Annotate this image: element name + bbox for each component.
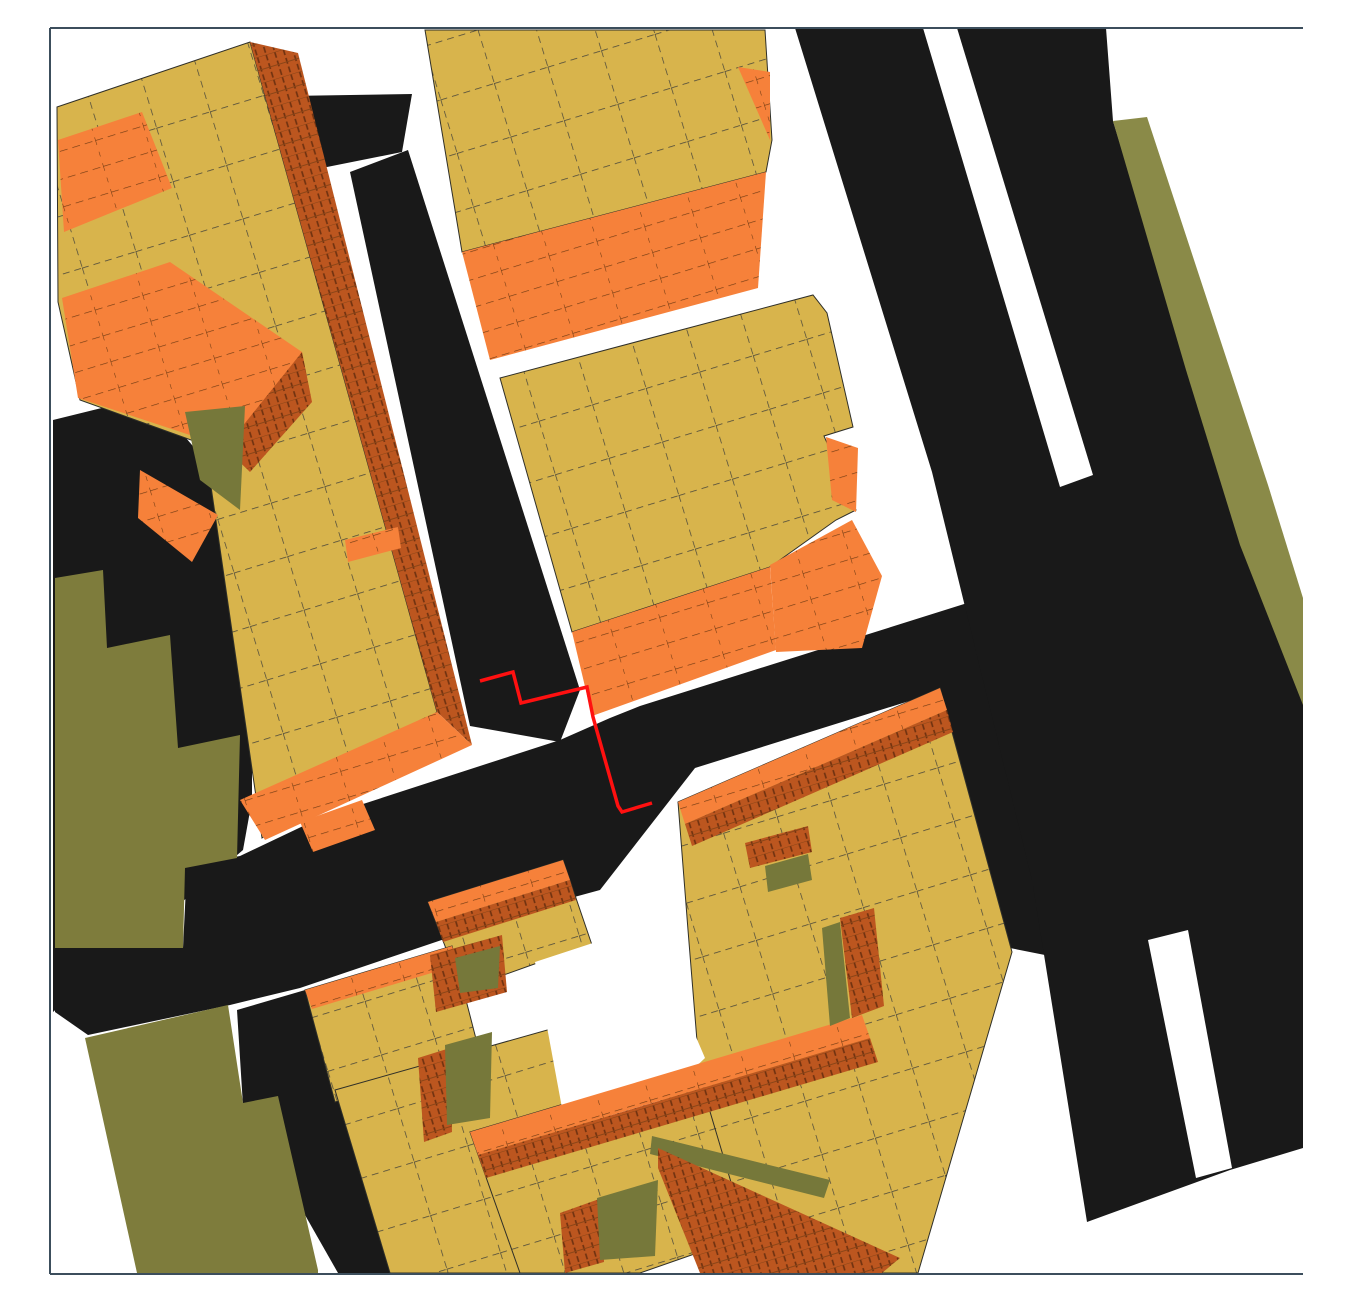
model-3d-viewport[interactable] [0,0,1355,1308]
building-d-court2-olive [445,1032,492,1125]
scene-root [50,28,1303,1274]
city-model-page [0,0,1355,1308]
